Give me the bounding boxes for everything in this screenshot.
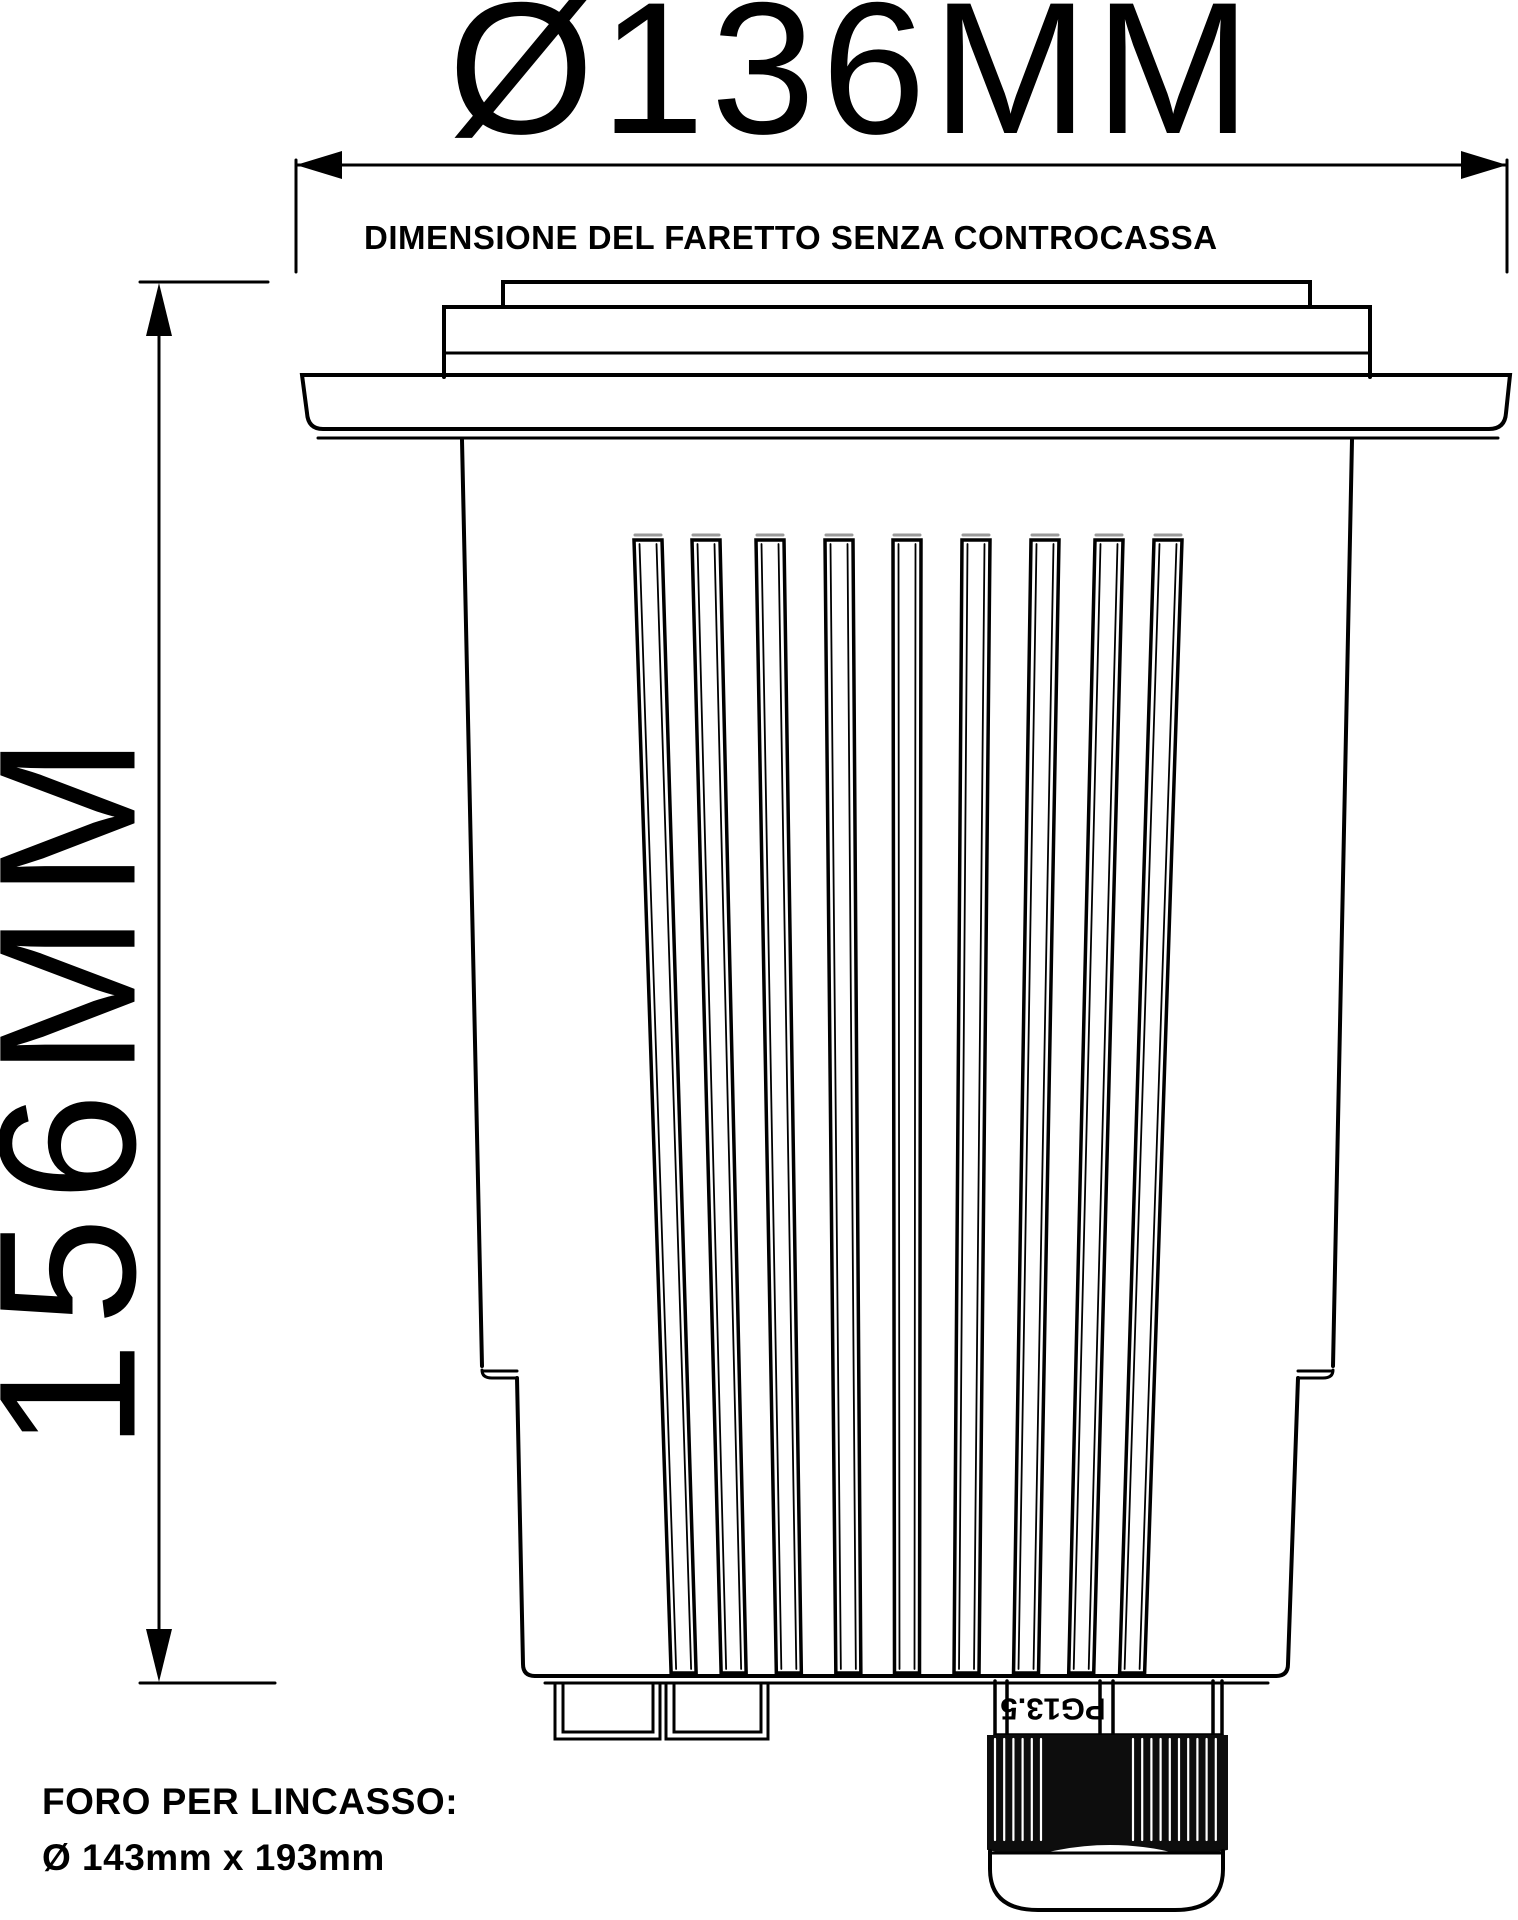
cooling-fins — [634, 535, 1182, 1673]
gland-dome-cap — [990, 1851, 1223, 1910]
body-side-left-upper — [462, 440, 482, 1366]
cooling-fin — [893, 540, 921, 1673]
technical-drawing-page: Ø136MM DIMENSIONE DEL FARETTO SENZA CONT… — [0, 0, 1518, 1920]
bottom-tabs — [555, 1683, 768, 1739]
body-side-left-lower — [517, 1378, 535, 1676]
top-cap — [503, 282, 1310, 307]
top-dimension-caption: DIMENSIONE DEL FARETTO SENZA CONTROCASSA — [364, 221, 1218, 254]
h-dimension-arrow-left — [296, 151, 342, 179]
gland-knurled-nut — [988, 1736, 1227, 1853]
fin-inner-line — [899, 544, 900, 1669]
cable-gland-size-label: PG13.5 — [1000, 1694, 1105, 1725]
bezel-ring — [444, 307, 1370, 377]
v-dimension-arrow-bottom — [146, 1629, 172, 1682]
v-dimension-arrow-top — [146, 283, 172, 336]
tab-left-inner — [563, 1683, 653, 1732]
top-diameter-label: Ø136MM — [448, 0, 1257, 162]
flange-outline — [302, 375, 1510, 429]
flange — [302, 375, 1510, 438]
bezel-outline — [444, 307, 1370, 377]
h-dimension-arrow-right — [1461, 151, 1507, 179]
body-side-right-upper — [1333, 440, 1352, 1366]
tab-right-inner — [674, 1683, 761, 1732]
side-height-label: 156MM — [0, 720, 166, 1450]
top-cap-outline — [503, 282, 1310, 307]
recess-note-size: Ø 143mm x 193mm — [42, 1839, 385, 1876]
recess-note-title: FORO PER LINCASSO: — [42, 1783, 458, 1820]
luminaire-line-drawing — [0, 0, 1518, 1920]
fin-inner-line — [915, 544, 916, 1669]
body-side-right-lower — [1276, 1378, 1298, 1676]
